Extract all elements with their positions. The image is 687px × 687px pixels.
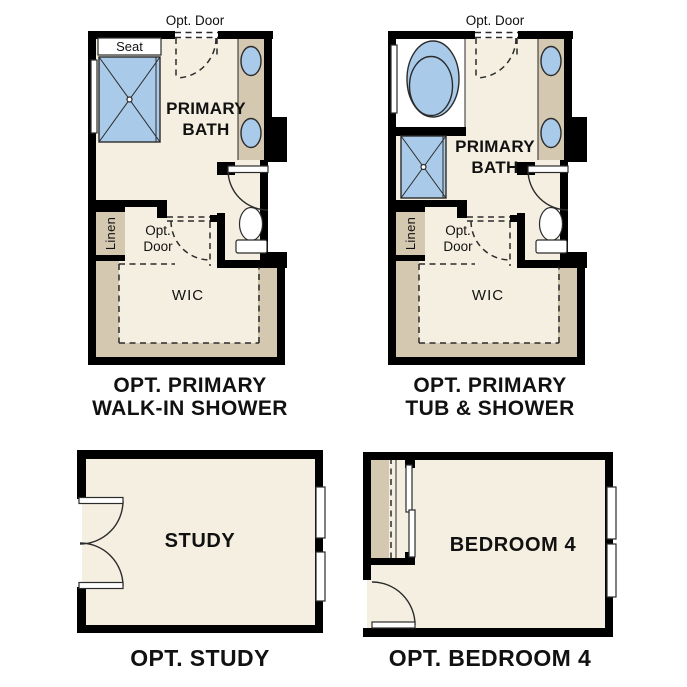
tub-shower-floorplan-drawing <box>388 30 592 370</box>
room-label-study: STUDY <box>130 530 270 553</box>
plan-study: STUDY OPT. STUDY <box>68 444 332 676</box>
plan-walkin-shower: Opt. Door <box>88 8 292 422</box>
window-icon <box>91 60 97 133</box>
opt-door-top-label: Opt. Door <box>135 13 255 29</box>
opt-door-passage-label: Opt. Door <box>128 223 188 254</box>
linen-label: Linen <box>396 212 425 255</box>
opt-door-top-label: Opt. Door <box>435 13 555 29</box>
window-icon <box>391 45 397 113</box>
room-label-primary-bath: PRIMARY BATH <box>445 136 545 178</box>
tub-icon <box>407 41 459 117</box>
room-label-bedroom4: BEDROOM 4 <box>433 534 593 557</box>
opt-door-passage-label: Opt. Door <box>428 223 488 254</box>
room-label-primary-bath: PRIMARY BATH <box>156 98 256 140</box>
plan-tub-shower: Opt. Door <box>388 8 592 422</box>
linen-label: Linen <box>96 212 125 255</box>
caption-study: OPT. STUDY <box>68 646 332 670</box>
wic-label: WIC <box>158 287 218 304</box>
shower-icon <box>401 136 446 198</box>
seat-label: Seat <box>98 39 161 55</box>
caption-bedroom4: OPT. BEDROOM 4 <box>356 646 624 670</box>
caption-tub-shower: OPT. PRIMARY TUB & SHOWER <box>373 375 607 420</box>
caption-walkin-shower: OPT. PRIMARY WALK-IN SHOWER <box>73 375 307 420</box>
wic-label: WIC <box>458 287 518 304</box>
walkin-shower-floorplan-drawing <box>88 30 292 370</box>
plan-bedroom4: BEDROOM 4 OPT. BEDROOM 4 <box>356 444 624 676</box>
